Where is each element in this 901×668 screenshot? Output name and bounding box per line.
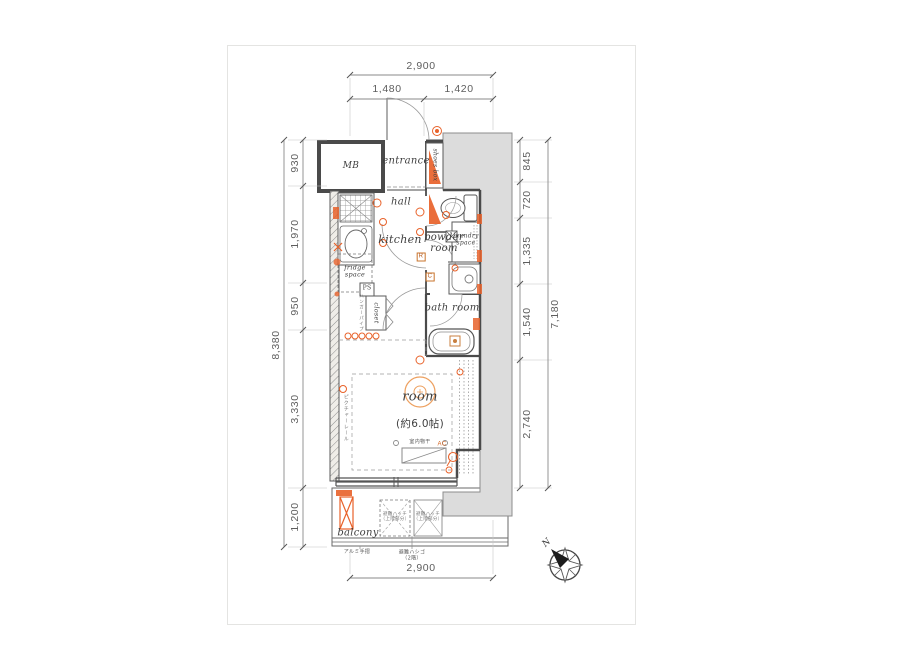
dim-right-seg: 845 <box>522 151 534 170</box>
drying-hook-icon <box>394 441 399 446</box>
toilet-bowl-icon <box>441 199 465 218</box>
dim-right-seg: 1,335 <box>522 236 534 265</box>
label-r-mark: R <box>417 253 426 262</box>
dim-left-seg: 950 <box>290 296 302 315</box>
room-label-room: room <box>402 391 437 406</box>
floor-plan: 2,900 1,480 1,420 8,380 930 1,970 950 3,… <box>0 0 901 668</box>
window-band <box>336 477 457 487</box>
room-label-bath-room: bath room <box>424 302 479 313</box>
dim-left-total: 8,380 <box>271 330 283 359</box>
label-hanger-pipe: ハンガーパイプ <box>358 294 363 333</box>
room-label-ps: PS <box>363 286 372 293</box>
toilet-tank-icon <box>464 195 477 221</box>
dim-right-seg: 720 <box>522 190 534 209</box>
label-picture-rail: ピクチャーレール <box>342 394 348 442</box>
door-marker-toilet <box>429 194 441 224</box>
room-label-kitchen: kitchen <box>378 234 422 246</box>
entrance-door-swing <box>387 98 429 140</box>
compass-icon <box>548 548 582 582</box>
room-label-mb: MB <box>343 161 359 171</box>
label-c-mark: C <box>426 273 435 282</box>
room-label-entrance: entrance <box>382 155 429 166</box>
dim-top-right: 1,420 <box>444 84 473 96</box>
dim-left-seg: 1,200 <box>290 502 302 531</box>
room-label-laundry-space: laundry space <box>453 233 478 246</box>
room-label-shoes-box: shoes box <box>431 149 438 182</box>
room-label-closet: closet <box>372 302 379 323</box>
balcony-fixture-icon <box>336 490 352 496</box>
washbasin-counter-icon <box>449 264 480 294</box>
dim-left-seg: 930 <box>290 153 302 172</box>
bathtub-icon <box>429 329 474 354</box>
dim-left-seg: 3,330 <box>290 394 302 423</box>
dim-left-seg: 1,970 <box>290 219 302 248</box>
room-label-hall: hall <box>391 196 411 207</box>
room-label-balcony: balcony <box>337 527 378 538</box>
room-size-label: (約6.0帖) <box>396 419 444 431</box>
label-indoor-drying: 室内物干 <box>409 440 430 446</box>
dim-right-seg: 1,540 <box>522 307 534 336</box>
dim-right-total: 7,180 <box>550 299 562 328</box>
dim-right-seg: 2,740 <box>522 409 534 438</box>
floor-plan-linework <box>0 0 901 668</box>
room-right-dashes <box>460 360 474 474</box>
label-ac: AC <box>438 442 447 449</box>
room-label-fridge-space: fridge space <box>344 265 366 280</box>
label-handrail: アルミ手摺 <box>344 550 370 556</box>
dim-top-total: 2,900 <box>406 61 435 73</box>
label-evac-ladder: 避難ハシゴ （2階） <box>399 550 426 561</box>
closet-door-fold <box>386 298 393 330</box>
dim-bottom-total: 2,900 <box>406 563 435 575</box>
label-evac-hatch-2: 避難ハッチ （上階部分） <box>414 512 443 522</box>
label-evac-hatch-1: 避難ハッチ （上階部分） <box>381 512 410 522</box>
room-door-swing <box>383 288 425 330</box>
dim-top-left: 1,480 <box>372 84 401 96</box>
